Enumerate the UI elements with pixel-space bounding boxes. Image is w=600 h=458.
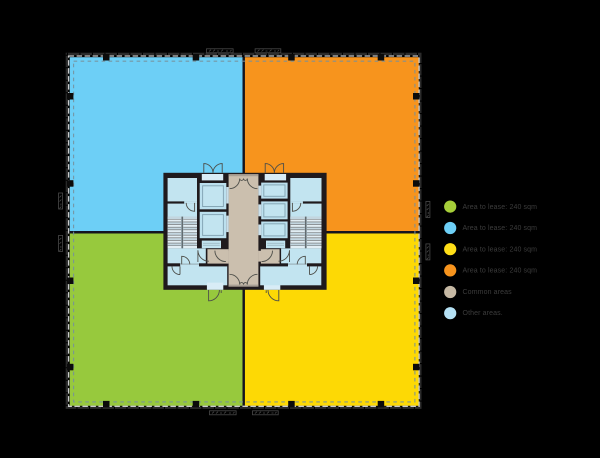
svg-text:Area to lease: 240 sqm: Area to lease: 240 sqm	[463, 246, 538, 253]
svg-text:Common areas: Common areas	[463, 289, 513, 296]
svg-text:Area to lease: 240 sqm: Area to lease: 240 sqm	[463, 204, 538, 211]
svg-text:Area to lease: 240 sqm: Area to lease: 240 sqm	[463, 268, 538, 275]
svg-text:Other areas.: Other areas.	[463, 310, 503, 317]
svg-text:Area to lease: 240 sqm: Area to lease: 240 sqm	[463, 225, 538, 232]
